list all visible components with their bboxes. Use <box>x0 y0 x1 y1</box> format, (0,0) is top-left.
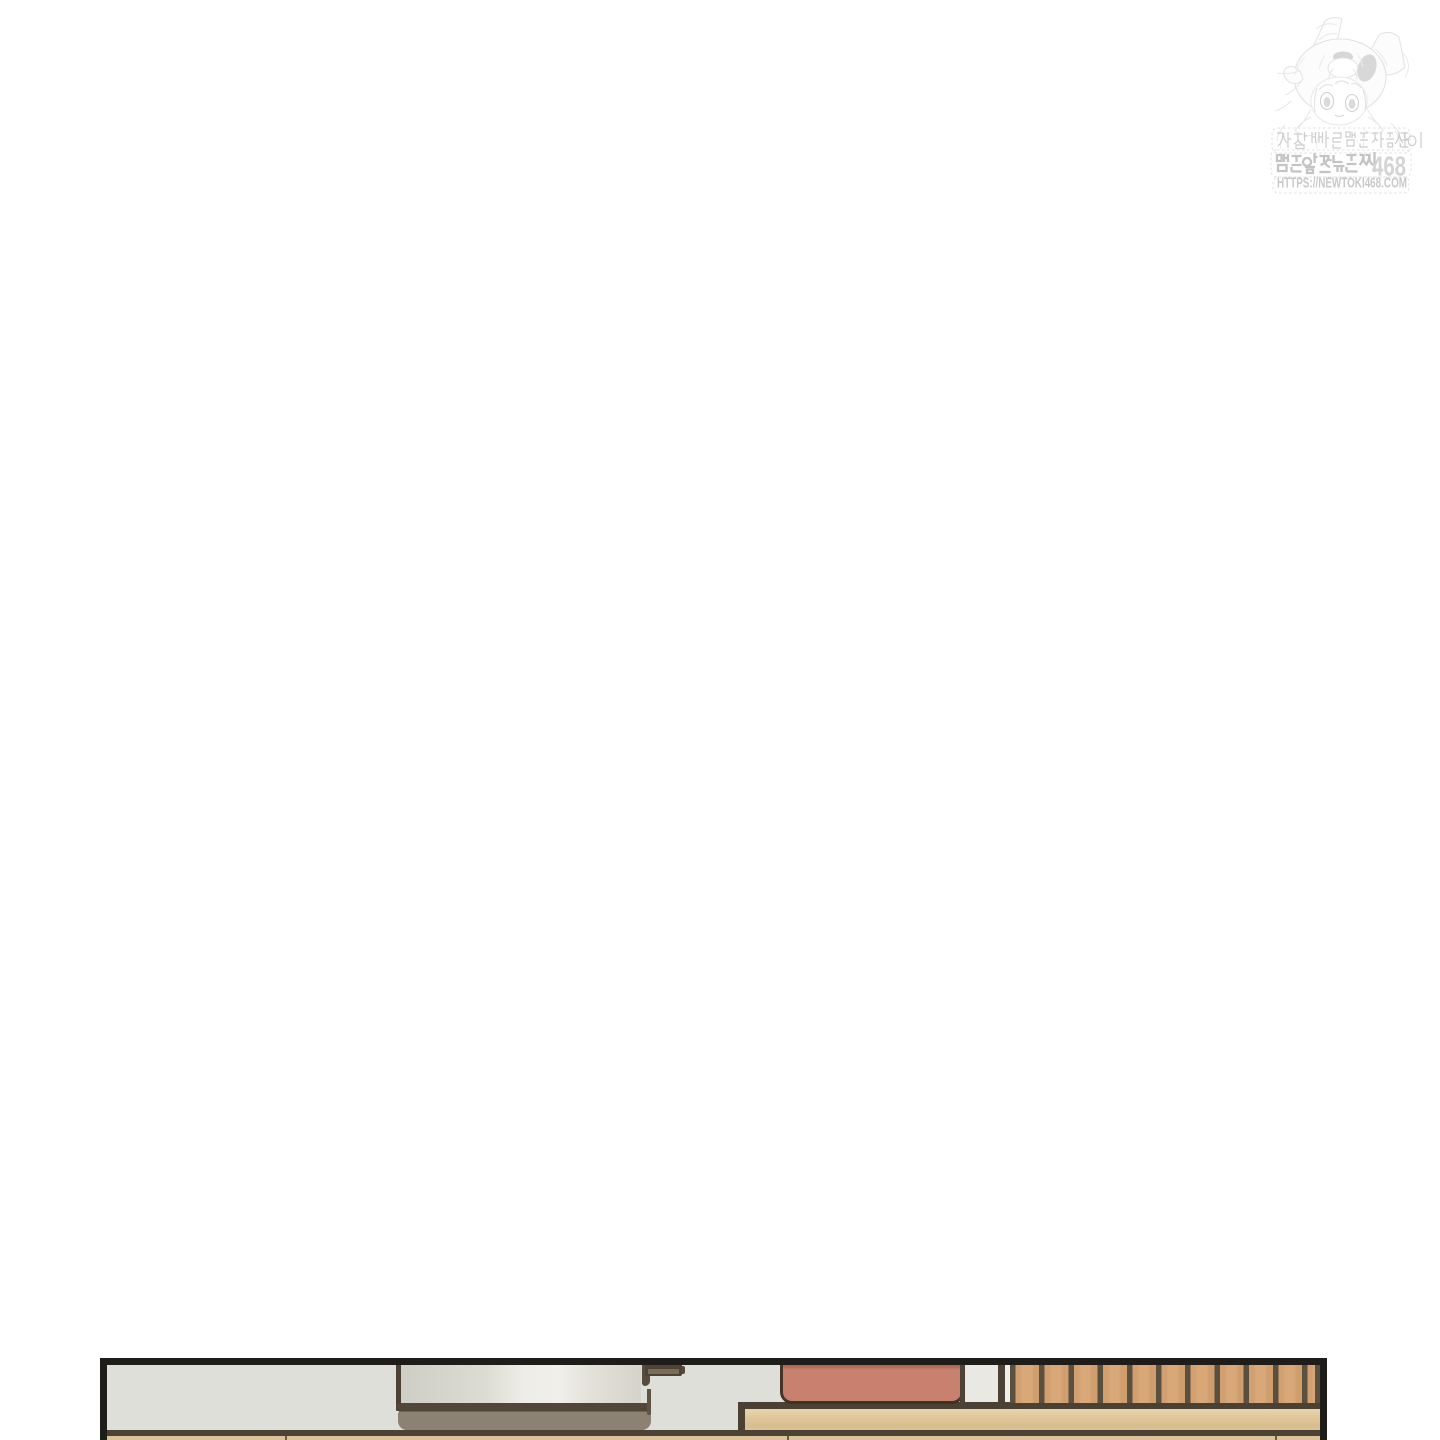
svg-text:HTTPS://NEWTOKI468.COM: HTTPS://NEWTOKI468.COM <box>1277 175 1407 192</box>
